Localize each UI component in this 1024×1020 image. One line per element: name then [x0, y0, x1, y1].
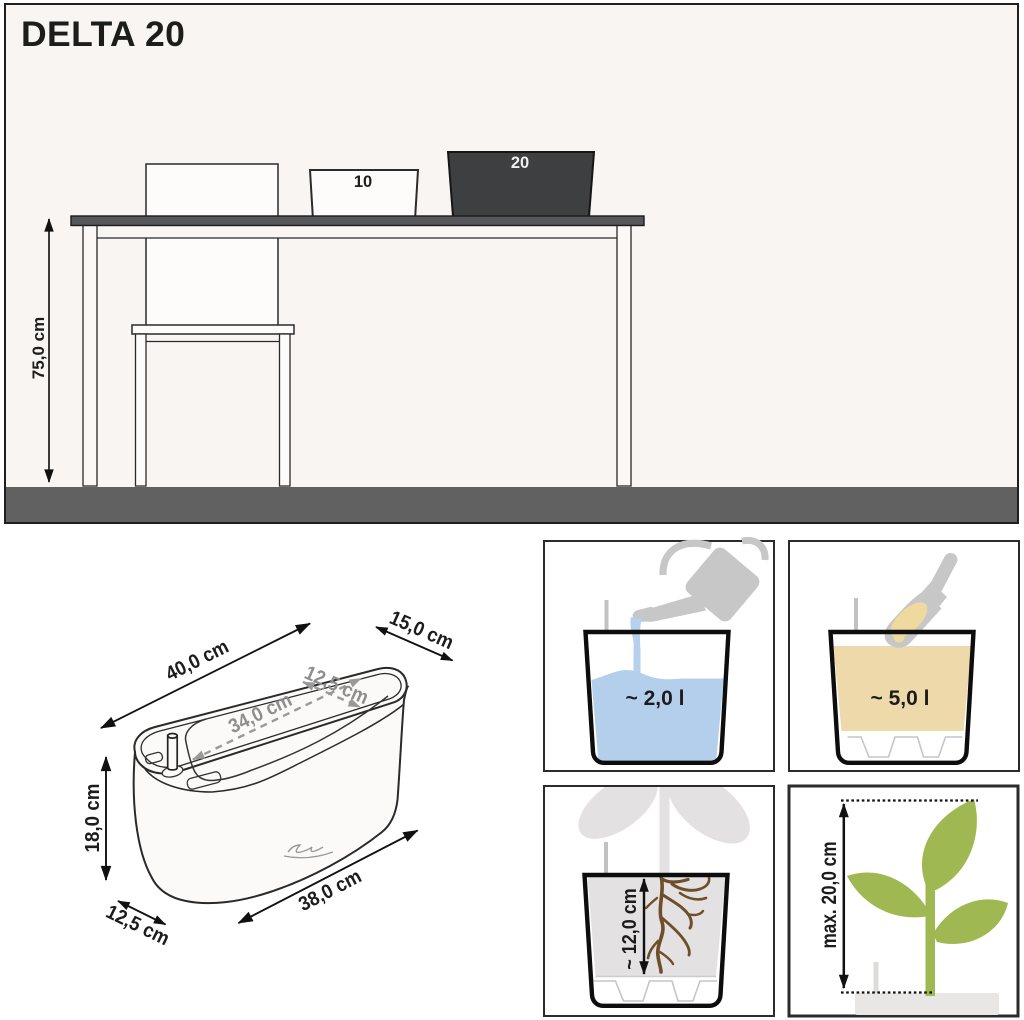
svg-text:10: 10	[354, 173, 372, 191]
svg-text:12,5 cm: 12,5 cm	[102, 901, 172, 950]
svg-text:DELTA 20: DELTA 20	[21, 14, 185, 54]
svg-text:~ 12,0 cm: ~ 12,0 cm	[619, 888, 641, 970]
svg-text:18,0 cm: 18,0 cm	[81, 784, 104, 853]
svg-text:40,0 cm: 40,0 cm	[162, 636, 232, 686]
svg-text:~ 2,0 l: ~ 2,0 l	[626, 687, 685, 710]
svg-text:75,0 cm: 75,0 cm	[29, 317, 48, 379]
svg-text:~ 5,0 l: ~ 5,0 l	[871, 687, 930, 710]
svg-text:20: 20	[511, 154, 529, 172]
svg-text:max. 20,0 cm: max. 20,0 cm	[817, 841, 841, 948]
